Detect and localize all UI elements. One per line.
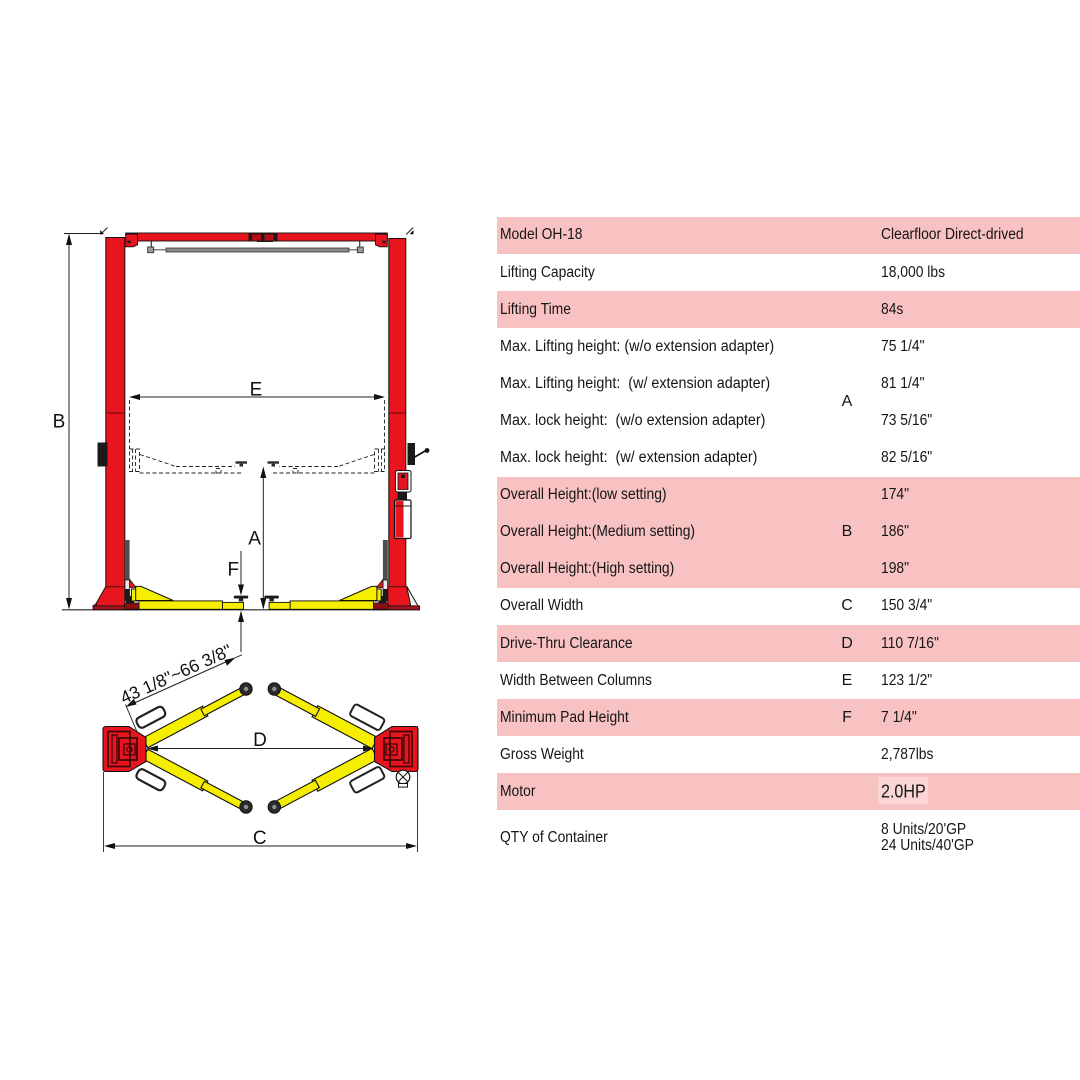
svg-text:B: B [53, 412, 66, 433]
svg-text:F: F [227, 560, 239, 581]
svg-text:E: E [250, 380, 263, 401]
svg-text:D: D [253, 730, 267, 751]
svg-text:C: C [253, 828, 267, 849]
svg-text:43 1/8"~66 3/8": 43 1/8"~66 3/8" [117, 640, 235, 708]
svg-text:A: A [248, 528, 261, 549]
